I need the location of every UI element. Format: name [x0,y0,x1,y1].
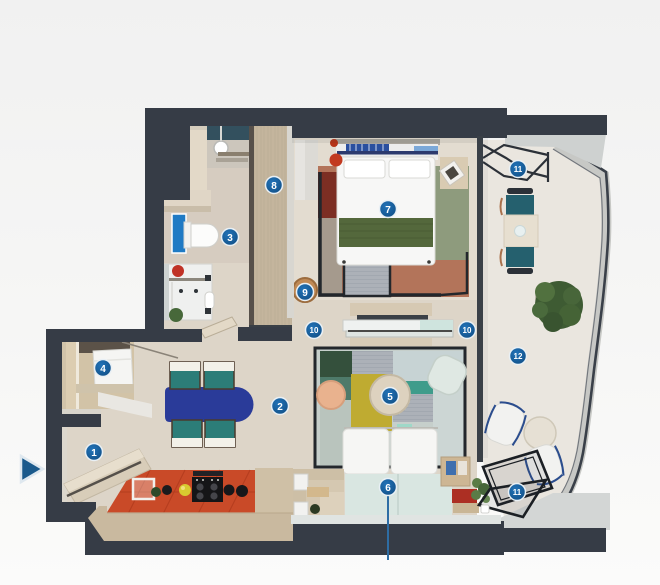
svg-text:8: 8 [271,181,277,192]
svg-text:6: 6 [385,483,391,494]
svg-text:7: 7 [385,205,391,216]
svg-text:12: 12 [514,352,523,361]
svg-text:10: 10 [463,326,472,335]
svg-text:3: 3 [227,233,233,244]
svg-text:5: 5 [387,392,393,403]
svg-text:11: 11 [513,488,522,497]
svg-text:10: 10 [310,326,319,335]
svg-text:9: 9 [302,288,308,299]
svg-text:4: 4 [100,364,106,375]
svg-text:11: 11 [514,165,523,174]
svg-text:1: 1 [91,448,97,459]
svg-text:2: 2 [277,402,283,413]
